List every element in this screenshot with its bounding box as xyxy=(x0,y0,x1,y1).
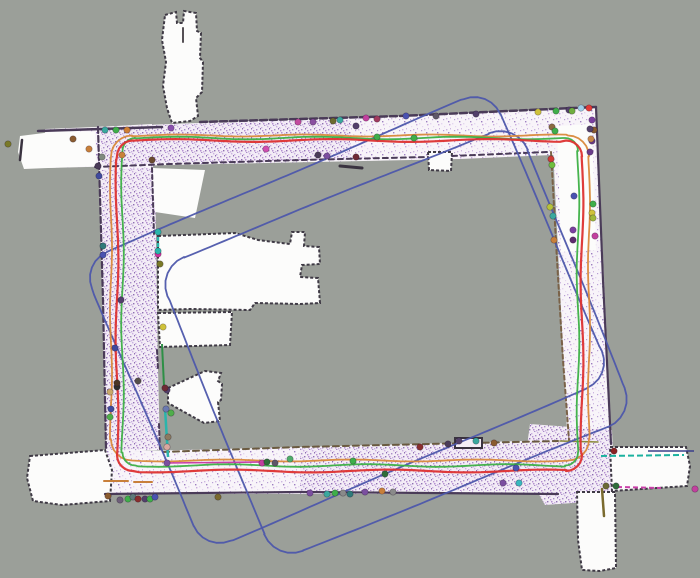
landmark-dot xyxy=(390,489,396,495)
landmark-dot xyxy=(433,113,439,119)
landmark-dot xyxy=(165,434,171,440)
landmark-dot xyxy=(114,380,120,386)
landmark-dot xyxy=(500,480,506,486)
landmark-dot xyxy=(548,156,554,162)
landmark-dot xyxy=(553,108,559,114)
landmark-dot xyxy=(578,105,584,111)
landmark-dot xyxy=(374,134,380,140)
landmark-dot xyxy=(164,460,170,466)
landmark-dot xyxy=(570,237,576,243)
landmark-dot xyxy=(569,108,575,114)
landmark-dot xyxy=(160,324,166,330)
landmark-dot xyxy=(107,414,113,420)
landmark-dot xyxy=(332,490,338,496)
landmark-dot xyxy=(613,483,619,489)
landmark-dot xyxy=(411,135,417,141)
landmark-dot xyxy=(135,496,141,502)
landmark-dot xyxy=(107,389,113,395)
segment-green-vertical-left xyxy=(162,344,164,386)
landmark-dot xyxy=(99,154,105,160)
map-region-top-left-white-end xyxy=(18,131,96,169)
segment-loop-closure-magenta-left xyxy=(167,462,265,463)
landmark-dot xyxy=(152,494,158,500)
map-region-e-room xyxy=(158,232,320,310)
landmark-dot xyxy=(445,441,451,447)
landmark-dot xyxy=(100,252,106,258)
landmark-dot xyxy=(155,229,161,235)
landmark-dot xyxy=(155,248,161,254)
landmark-dot xyxy=(552,128,558,134)
slam-map-view xyxy=(0,0,700,578)
map-canvas xyxy=(0,0,700,578)
landmark-dot xyxy=(551,237,557,243)
landmark-dot xyxy=(603,483,609,489)
landmark-dot xyxy=(590,201,596,207)
map-region-funnel-room xyxy=(168,371,222,423)
landmark-dot xyxy=(117,497,123,503)
map-region-down-stem xyxy=(577,492,616,571)
landmark-dot xyxy=(337,117,343,123)
landmark-dot xyxy=(379,488,385,494)
landmark-dot xyxy=(264,459,270,465)
map-region-top-notch-room xyxy=(428,152,452,171)
landmark-dot xyxy=(135,378,141,384)
map-region-interior-patch-upper-left xyxy=(152,168,205,218)
map-region-right-wing xyxy=(610,447,690,491)
landmark-dot xyxy=(353,154,359,160)
landmark-dot xyxy=(295,119,301,125)
landmark-dot xyxy=(473,438,479,444)
landmark-dot xyxy=(324,153,330,159)
wall-left-corridor-inner-wall-mid xyxy=(157,350,158,369)
landmark-dot xyxy=(570,227,576,233)
landmark-dot xyxy=(513,465,519,471)
landmark-dot xyxy=(96,173,102,179)
landmark-dot xyxy=(571,193,577,199)
landmark-dot xyxy=(535,109,541,115)
landmark-dot xyxy=(350,458,356,464)
landmark-dot xyxy=(353,123,359,129)
landmark-dot xyxy=(590,215,596,221)
landmark-dot xyxy=(382,471,388,477)
landmark-dot xyxy=(315,152,321,158)
landmark-dot xyxy=(307,490,313,496)
landmark-dot xyxy=(215,494,221,500)
landmark-dot xyxy=(347,491,353,497)
landmark-dot xyxy=(588,136,594,142)
landmark-dot xyxy=(149,157,155,163)
landmark-dot xyxy=(324,491,330,497)
landmark-dot xyxy=(119,152,125,158)
landmark-dot xyxy=(86,146,92,152)
landmark-dot xyxy=(362,489,368,495)
landmark-dot xyxy=(105,493,111,499)
landmark-dot xyxy=(547,204,553,210)
landmark-dot xyxy=(157,261,163,267)
landmark-dot xyxy=(374,116,380,122)
landmark-dot xyxy=(592,233,598,239)
landmark-dot xyxy=(363,115,369,121)
map-region-e-room-lower xyxy=(158,312,232,347)
landmark-dot xyxy=(272,460,278,466)
landmark-dot xyxy=(473,111,479,117)
landmark-dot xyxy=(310,119,316,125)
landmark-dot xyxy=(102,127,108,133)
landmark-dot xyxy=(692,486,698,492)
landmark-dot xyxy=(516,480,522,486)
landmark-dot xyxy=(162,385,168,391)
wall-mark-olive-wall-bottom xyxy=(560,441,598,442)
landmark-dot xyxy=(118,297,124,303)
landmark-dot xyxy=(263,146,269,152)
landmark-dot xyxy=(168,410,174,416)
landmark-dot xyxy=(589,117,595,123)
landmark-dot xyxy=(5,141,11,147)
landmark-dot xyxy=(164,444,170,450)
landmark-dot xyxy=(550,213,556,219)
landmark-dot xyxy=(611,448,617,454)
landmark-dot xyxy=(340,490,346,496)
landmark-dot xyxy=(124,127,130,133)
landmark-dot xyxy=(113,127,119,133)
map-region-bottom-left-room xyxy=(27,450,112,505)
landmark-dot xyxy=(108,406,114,412)
landmark-dot xyxy=(549,162,555,168)
wall-mark-dark-mark-top xyxy=(340,166,362,168)
landmark-dot xyxy=(587,126,593,132)
landmark-dot xyxy=(112,345,118,351)
landmark-dot xyxy=(491,440,497,446)
landmark-dot xyxy=(287,456,293,462)
landmark-dot xyxy=(70,136,76,142)
landmark-dot xyxy=(456,438,462,444)
landmark-dot xyxy=(95,163,101,169)
landmark-dot xyxy=(403,113,409,119)
landmark-dot xyxy=(330,118,336,124)
landmark-dot xyxy=(587,149,593,155)
landmark-dot xyxy=(100,243,106,249)
landmark-dot xyxy=(417,444,423,450)
landmark-dot xyxy=(168,125,174,131)
landmark-dot xyxy=(586,105,592,111)
